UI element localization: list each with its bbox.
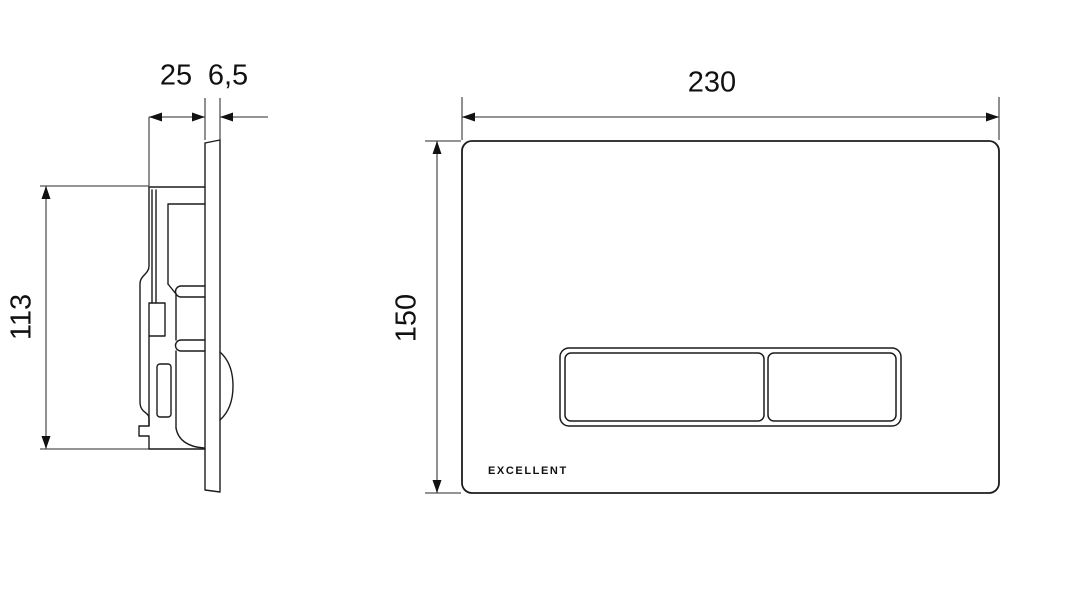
flush-button-large <box>565 353 764 421</box>
side-view-bottom-arc <box>176 428 204 448</box>
dim-label-height-150: 150 <box>393 294 422 342</box>
brand-logo-text: EXCELLENT <box>488 465 568 477</box>
front-view-plate <box>462 141 999 493</box>
side-view-push-rod <box>157 364 171 417</box>
dim-arrow-113-top-icon <box>42 186 51 199</box>
technical-drawing-page: 25 6,5 113 230 150 EXCELLENT <box>0 0 1068 596</box>
dim-arrow-150-top-icon <box>433 141 442 154</box>
dim-arrow-65-icon <box>220 113 233 122</box>
dim-label-thickness-65: 6,5 <box>208 62 248 91</box>
dim-arrow-25-right-icon <box>192 113 205 122</box>
side-view-top-band <box>168 204 205 284</box>
side-view-button-bulge <box>220 352 233 420</box>
dim-arrow-113-bottom-icon <box>42 436 51 449</box>
side-view-mount-tab-lower <box>176 340 206 351</box>
side-view-drawing <box>40 98 268 492</box>
side-view-inner-wall <box>149 284 176 428</box>
dim-arrow-25-left-icon <box>149 113 162 122</box>
dim-arrow-230-left-icon <box>462 113 475 122</box>
dim-label-width-230: 230 <box>688 69 736 98</box>
flush-button-small <box>768 353 896 421</box>
side-view-detail-box <box>149 303 165 336</box>
dim-label-height-113: 113 <box>8 294 37 340</box>
side-view-plate-profile <box>205 140 220 492</box>
dim-label-depth-25: 25 <box>160 62 192 91</box>
front-view-drawing <box>425 97 999 493</box>
dim-arrow-230-right-icon <box>986 113 999 122</box>
side-view-mount-tab-upper <box>176 286 206 297</box>
dim-arrow-150-bottom-icon <box>433 480 442 493</box>
side-view-channel-lines <box>152 190 156 303</box>
